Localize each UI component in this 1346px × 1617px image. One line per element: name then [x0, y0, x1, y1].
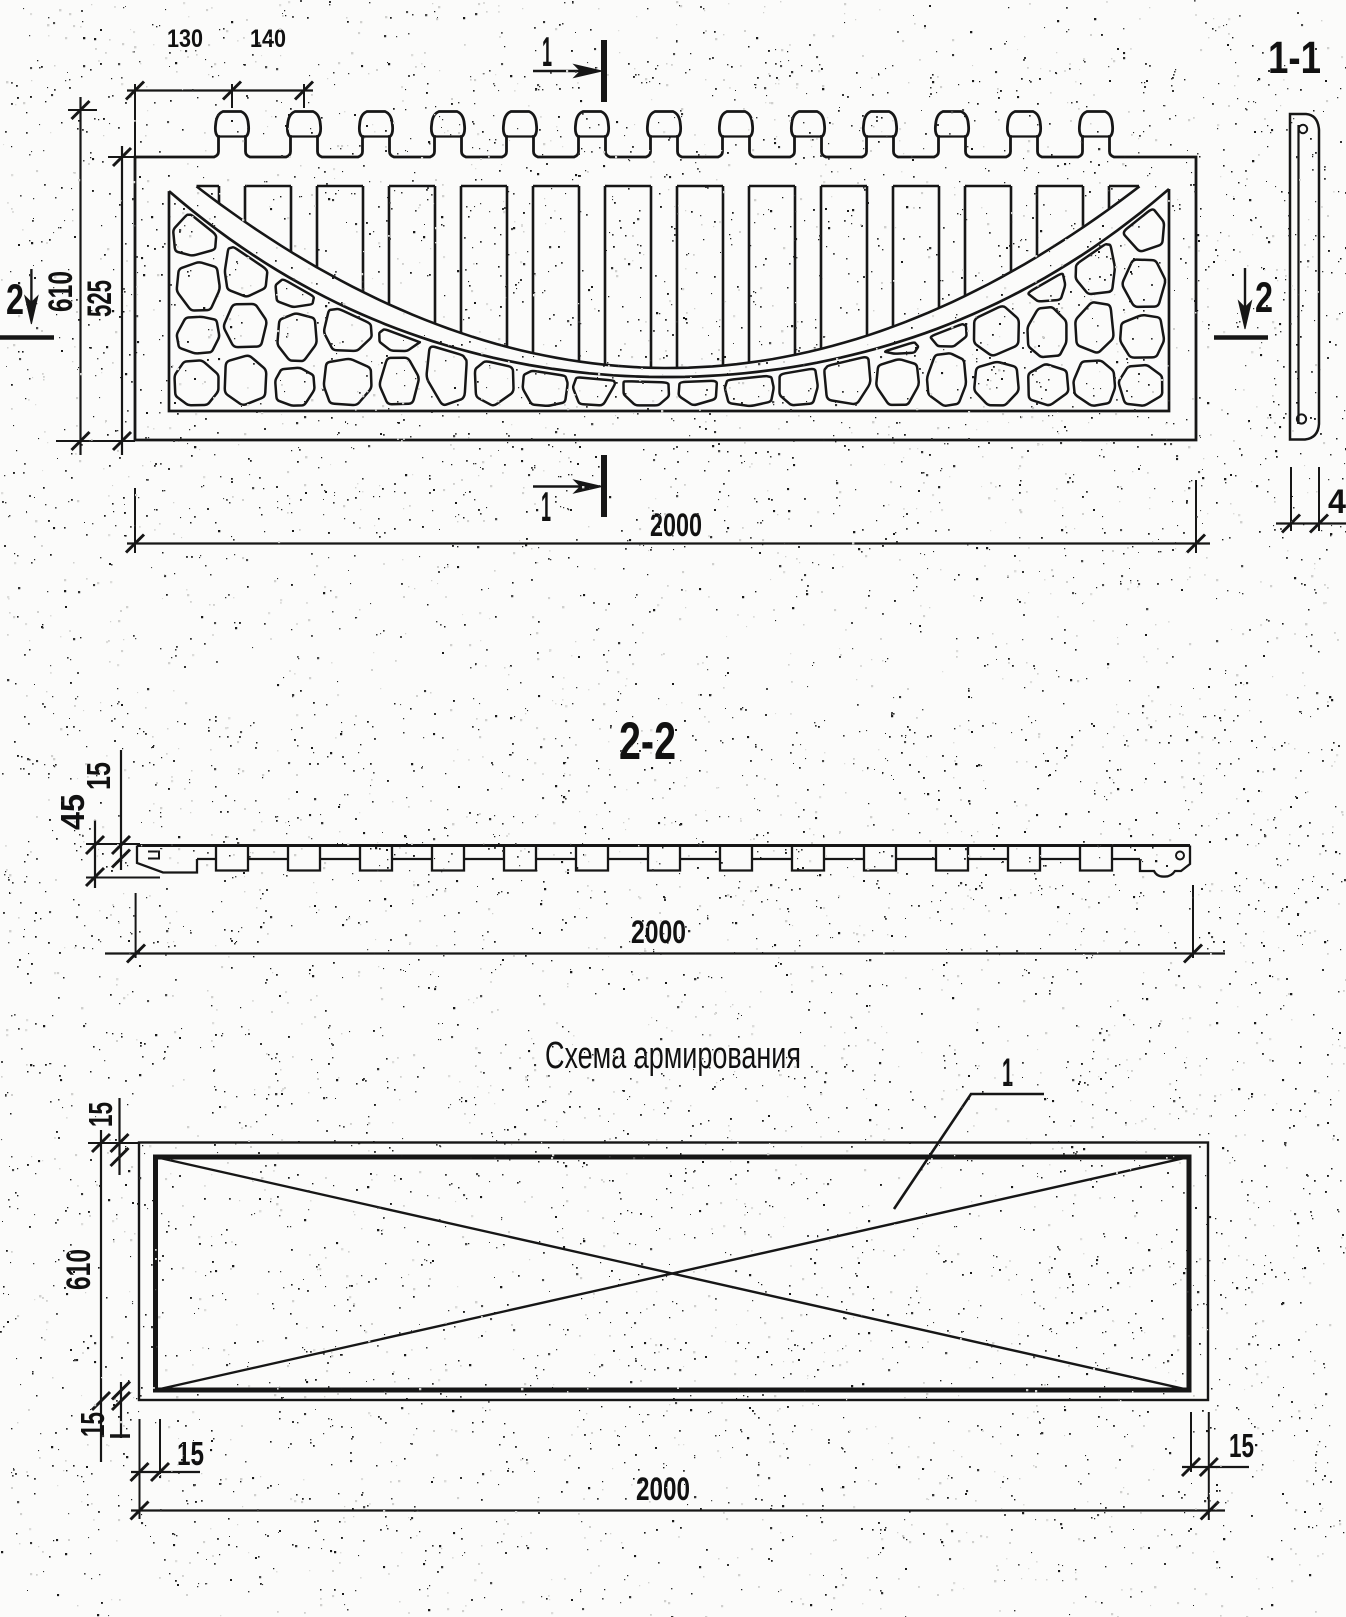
svg-text:15: 15: [80, 762, 117, 790]
svg-text:2000: 2000: [650, 507, 702, 543]
svg-text:2-2: 2-2: [619, 712, 676, 771]
svg-text:15: 15: [74, 1412, 111, 1437]
svg-text:1-1: 1-1: [1268, 32, 1321, 83]
svg-text:610: 610: [60, 1249, 98, 1290]
svg-text:Схема армирования: Схема армирования: [545, 1035, 801, 1077]
svg-text:2: 2: [1255, 274, 1273, 322]
svg-text:15: 15: [82, 1102, 119, 1127]
svg-text:45: 45: [54, 794, 91, 830]
svg-text:610: 610: [42, 271, 80, 312]
svg-text:15: 15: [177, 1435, 204, 1472]
svg-text:1: 1: [541, 483, 551, 530]
svg-text:2: 2: [6, 276, 24, 324]
svg-text:2000: 2000: [631, 914, 686, 950]
svg-text:2000: 2000: [636, 1471, 690, 1507]
svg-text:1: 1: [542, 28, 552, 75]
svg-text:15: 15: [1229, 1427, 1254, 1464]
svg-text:1: 1: [1002, 1051, 1013, 1095]
svg-text:130: 130: [167, 25, 203, 53]
svg-text:45: 45: [1328, 483, 1346, 521]
